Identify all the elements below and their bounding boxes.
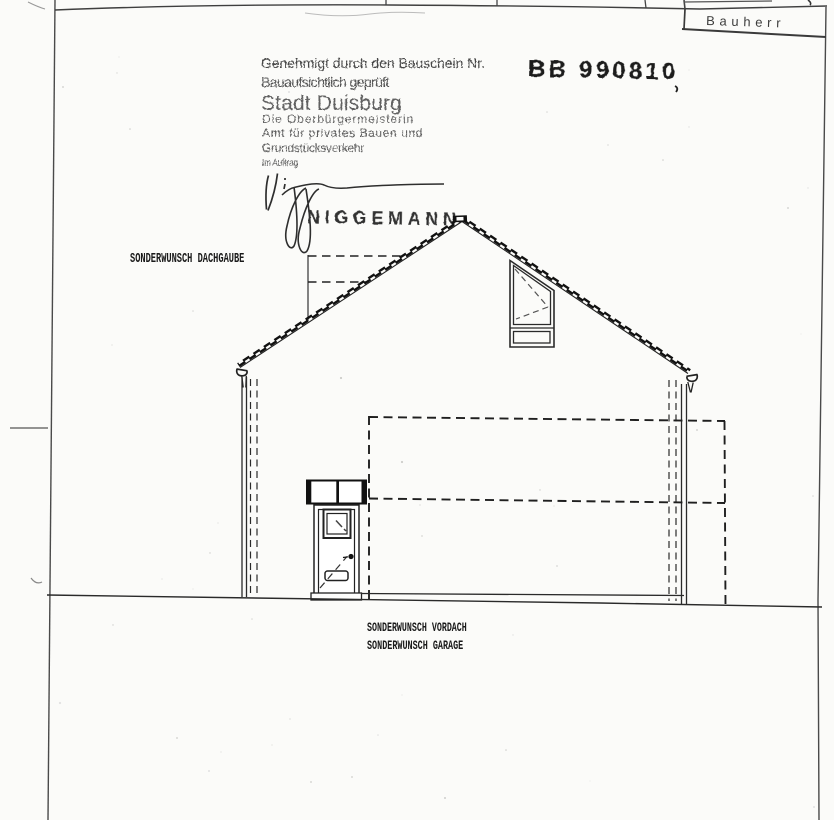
svg-text:SONDERWUNSCH VORDACH: SONDERWUNSCH VORDACH — [367, 621, 467, 635]
svg-text:SONDERWUNSCH GARAGE: SONDERWUNSCH GARAGE — [367, 640, 464, 654]
svg-text:Bauherr: Bauherr — [706, 13, 786, 30]
svg-text:BB 990810: BB 990810 — [528, 56, 679, 86]
svg-text:Grundstücksverkehr: Grundstücksverkehr — [262, 141, 364, 155]
svg-text:SONDERWUNSCH DACHGAUBE: SONDERWUNSCH DACHGAUBE — [130, 251, 244, 267]
svg-text:NIGGEMANN: NIGGEMANN — [307, 207, 461, 230]
svg-text:Die Oberbürgermeisterin: Die Oberbürgermeisterin — [262, 112, 414, 126]
svg-text:Genehmigt durch den Bauschein: Genehmigt durch den Bauschein Nr. — [261, 55, 485, 71]
svg-text:Amt für privates Bauen und: Amt für privates Bauen und — [262, 126, 423, 140]
svg-text:Im Auftrag: Im Auftrag — [262, 157, 298, 168]
svg-text:Bauaufsichtlich geprüft: Bauaufsichtlich geprüft — [261, 74, 390, 90]
